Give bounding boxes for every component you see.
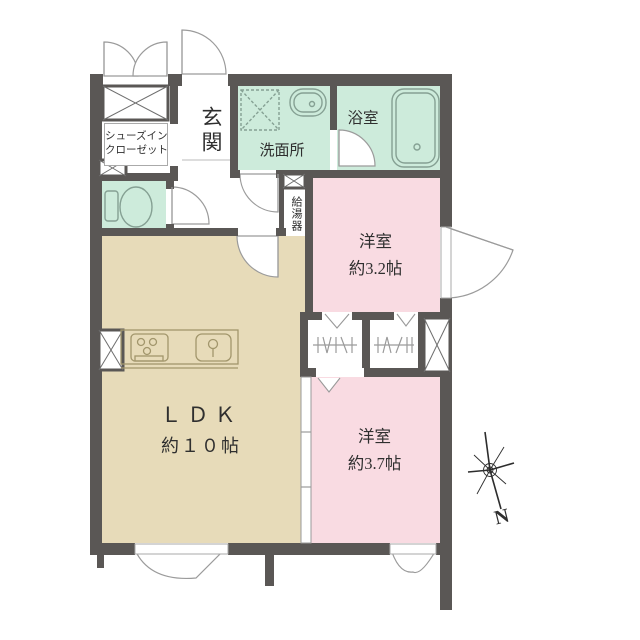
sliding-partition (301, 377, 311, 543)
bedroom-b-area: 約3.7帖 (311, 450, 438, 477)
bedroom-b-balcony-opening (390, 544, 436, 554)
washroom-sink (290, 89, 326, 116)
ldk-door-arc (237, 236, 278, 277)
shoe-closet-label-line2: クローゼット (105, 144, 167, 158)
bedroom-a-label: 洋室 約3.2帖 (313, 228, 438, 282)
bedroom-a-area: 約3.2帖 (313, 255, 438, 282)
entrance-door-arc (182, 30, 226, 74)
ldk-label: ＬＤＫ 約１０帖 (102, 400, 300, 462)
compass-rose (468, 432, 514, 509)
floor-plan: 玄関 シューズイン クローゼット 洗面所 浴室 給湯器 洋室 約3.2帖 洋室 … (0, 0, 640, 640)
ldk-area: 約１０帖 (102, 431, 300, 462)
ldk-balcony-opening (135, 544, 228, 554)
washing-machine-pan (241, 90, 279, 130)
kitchen-counter (121, 330, 238, 368)
bedroom-a-name: 洋室 (313, 228, 438, 255)
washroom-label: 洗面所 (238, 139, 326, 160)
shoe-closet-label-line1: シューズイン (105, 130, 167, 144)
shoe-closet-label: シューズイン クローゼット (104, 123, 168, 166)
bedroom-a-door-opening (441, 227, 451, 298)
bedroom-a-door-arc (446, 227, 513, 298)
bedroom-b-label: 洋室 約3.7帖 (311, 423, 438, 477)
plan-linework (0, 0, 640, 640)
washroom-door-arc (240, 174, 278, 212)
entrance-label: 玄関 (192, 88, 226, 174)
hall-closet-door-right-arc (133, 42, 167, 76)
toilet-fixture (105, 187, 152, 227)
water-heater-label: 給湯器 (285, 191, 304, 237)
toilet-door-arc (172, 187, 209, 224)
bedroom-b-name: 洋室 (311, 423, 438, 450)
bathtub (392, 89, 439, 167)
ldk-name: ＬＤＫ (102, 400, 300, 431)
bathroom-door-arc (339, 130, 375, 166)
bathroom-label: 浴室 (336, 106, 390, 128)
